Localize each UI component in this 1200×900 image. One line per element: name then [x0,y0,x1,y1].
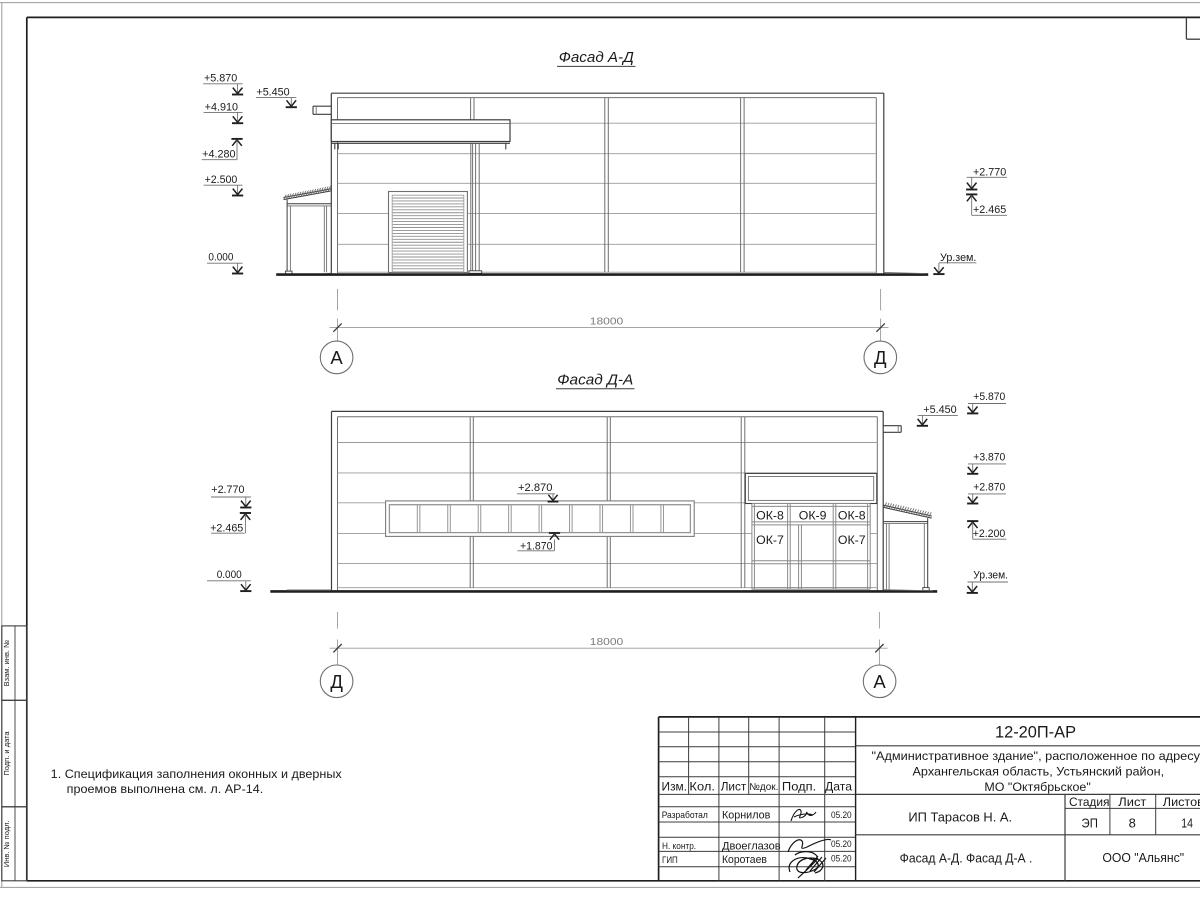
svg-text:Фасад А-Д. Фасад Д-А .: Фасад А-Д. Фасад Д-А . [900,850,1033,865]
svg-text:Д: Д [330,671,343,692]
svg-text:А: А [873,671,886,692]
svg-text:+2.465: +2.465 [210,523,243,535]
svg-text:+2.770: +2.770 [211,484,244,496]
svg-text:проемов выполнена см. л. АР-14: проемов выполнена см. л. АР-14. [67,782,264,796]
svg-text:0.000: 0.000 [208,251,233,263]
svg-text:1. Спецификация заполнения око: 1. Спецификация заполнения оконных и две… [51,767,343,781]
svg-text:+2.500: +2.500 [205,174,238,186]
svg-text:+2.200: +2.200 [973,528,1006,540]
svg-text:+5.450: +5.450 [256,87,289,99]
svg-text:Архангельская область, Устьянс: Архангельская область, Устьянский район, [913,764,1165,778]
svg-text:Изм.: Изм. [662,779,688,793]
svg-text:А: А [330,347,343,368]
svg-text:+2.870: +2.870 [973,482,1005,494]
svg-text:05.20: 05.20 [831,853,852,863]
svg-text:Кол.: Кол. [689,779,715,793]
svg-text:Ур.зем.: Ур.зем. [973,570,1008,582]
svg-text:Д: Д [874,347,887,368]
svg-text:ИП Тарасов Н. А.: ИП Тарасов Н. А. [908,810,1012,825]
svg-text:Н. контр.: Н. контр. [662,841,696,851]
svg-text:ОК-7: ОК-7 [838,533,866,547]
svg-text:ГИП: ГИП [662,855,678,865]
svg-text:"Административное здание", рас: "Административное здание", расположенное… [872,749,1200,763]
svg-text:Фасад Д-А: Фасад Д-А [557,371,633,388]
svg-text:ООО "Альянс": ООО "Альянс" [1102,850,1184,865]
svg-text:Листов: Листов [1163,795,1200,809]
svg-text:+4.910: +4.910 [205,102,238,114]
svg-text:Инв. № подл.: Инв. № подл. [2,820,11,867]
svg-text:14: 14 [1181,816,1193,831]
svg-text:Подп.: Подп. [782,779,816,793]
svg-text:+2.465: +2.465 [973,204,1006,216]
svg-text:+2.870: +2.870 [518,482,553,494]
svg-text:Двоеглазов: Двоеглазов [722,841,781,853]
svg-text:+5.870: +5.870 [204,73,237,85]
svg-text:+2.770: +2.770 [973,166,1006,178]
svg-text:ОК-8: ОК-8 [838,509,866,523]
svg-text:+4.280: +4.280 [202,148,235,160]
svg-text:Лист: Лист [1118,795,1146,809]
svg-text:Ур.зем.: Ур.зем. [940,252,976,264]
svg-text:12-20П-АР: 12-20П-АР [995,723,1076,741]
svg-text:ОК-9: ОК-9 [799,509,827,523]
svg-text:+3.870: +3.870 [973,452,1005,464]
svg-text:8: 8 [1129,816,1136,831]
svg-text:05.20: 05.20 [831,839,852,849]
svg-text:+5.450: +5.450 [923,404,956,416]
svg-text:ОК-8: ОК-8 [756,509,784,523]
svg-text:Фасад А-Д: Фасад А-Д [559,49,634,66]
svg-text:18000: 18000 [590,637,624,648]
svg-text:Коротаев: Коротаев [722,854,767,866]
svg-text:Взам. инв. №: Взам. инв. № [2,640,11,686]
svg-text:Разработал: Разработал [662,810,708,820]
svg-text:Стадия: Стадия [1069,795,1110,809]
svg-text:МО "Октябрьское": МО "Октябрьское" [984,780,1090,794]
svg-text:Подп. и дата: Подп. и дата [2,731,11,776]
svg-text:+5.870: +5.870 [973,391,1005,403]
svg-text:Лист: Лист [721,779,747,793]
svg-text:ОК-7: ОК-7 [756,533,784,547]
svg-text:18000: 18000 [590,317,624,328]
svg-text:+1.870: +1.870 [520,540,553,552]
svg-text:Корнилов: Корнилов [722,810,771,822]
svg-text:05.20: 05.20 [831,810,852,820]
svg-text:Дата: Дата [825,779,852,793]
svg-text:ЭП: ЭП [1082,816,1098,831]
svg-text:№док.: №док. [749,782,778,793]
svg-text:0.000: 0.000 [217,569,242,581]
